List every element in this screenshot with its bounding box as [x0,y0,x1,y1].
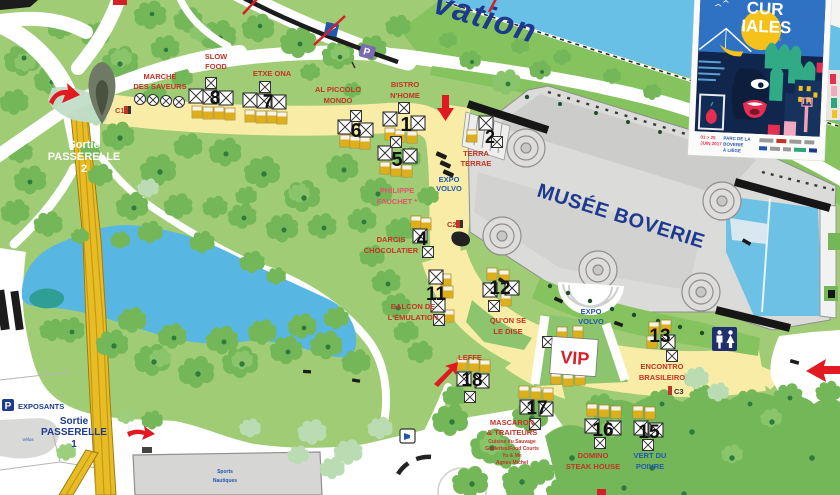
svg-text:JUIN 2017: JUIN 2017 [700,141,722,147]
svg-text:17: 17 [526,398,547,419]
svg-text:BALCON DE: BALCON DE [391,302,436,311]
svg-text:MARCHÉ: MARCHÉ [144,72,177,81]
svg-text:Nautiques: Nautiques [213,478,237,484]
svg-text:N'HOME: N'HOME [390,91,420,100]
svg-text:15: 15 [638,422,660,443]
svg-text:Sortie: Sortie [60,416,89,427]
svg-text:EXPO: EXPO [581,307,602,316]
svg-text:SLOW: SLOW [205,52,228,61]
svg-text:2: 2 [81,163,87,175]
svg-text:13: 13 [649,326,670,347]
svg-text:6: 6 [350,120,361,142]
svg-text:EXPOSANTS: EXPOSANTS [18,402,64,411]
svg-text:LEFFE: LEFFE [458,353,482,362]
svg-text:Cuisine du Sauvage: Cuisine du Sauvage [488,439,536,445]
svg-text:Yu & Me: Yu & Me [502,453,522,459]
svg-text:PASSERELLE: PASSERELLE [48,151,121,163]
svg-text:CHOCOLATIER: CHOCOLATIER [364,246,419,255]
svg-text:16: 16 [592,420,613,441]
svg-text:Vélos: Vélos [22,437,34,442]
svg-text:DARCIS: DARCIS [377,235,406,244]
svg-text:7: 7 [263,92,274,113]
svg-text:VOLVO: VOLVO [578,317,604,326]
svg-text:1: 1 [71,439,77,450]
svg-text:Sortie: Sortie [68,139,99,151]
svg-text:MASCARON: MASCARON [490,418,534,427]
svg-text:C1: C1 [115,106,125,115]
svg-text:Sports: Sports [217,469,233,475]
svg-text:MONDO: MONDO [324,96,353,105]
svg-text:Gaillettes/Food Courts: Gaillettes/Food Courts [485,446,539,452]
svg-text:VERT DU: VERT DU [634,451,667,460]
svg-text:01 > 25: 01 > 25 [700,135,716,141]
svg-text:AL PICCOLO: AL PICCOLO [315,85,361,94]
svg-text:ENCONTRO: ENCONTRO [641,362,684,371]
svg-text:STEAK HOUSE: STEAK HOUSE [566,462,620,471]
svg-text:EXPO: EXPO [439,175,460,184]
svg-text:ETXE ONA: ETXE ONA [253,69,292,78]
svg-text:FAUCHET *: FAUCHET * [377,197,418,206]
svg-text:IALES: IALES [741,16,792,37]
svg-text:BISTRO: BISTRO [391,80,420,89]
svg-text:4: 4 [417,229,428,250]
svg-text:PASSERELLE: PASSERELLE [41,427,107,438]
svg-text:5: 5 [391,149,402,171]
svg-text:DES SAVEURS: DES SAVEURS [133,82,186,91]
svg-text:TERRA: TERRA [463,149,489,158]
svg-text:TERRAE: TERRAE [461,159,492,168]
svg-text:Agnes Michel: Agnes Michel [496,460,529,466]
svg-text:VOLVO: VOLVO [436,184,462,193]
svg-text:QU'ON SE: QU'ON SE [490,316,526,325]
svg-text:C3: C3 [674,387,684,396]
svg-text:POIVRE: POIVRE [636,462,664,471]
svg-text:FOOD: FOOD [205,62,227,71]
svg-text:L'ÉMULATION: L'ÉMULATION [388,313,438,322]
svg-text:P: P [5,401,12,412]
svg-text:& TRAITEURS: & TRAITEURS [487,428,537,437]
svg-text:DOMINO: DOMINO [578,451,609,460]
svg-text:PHILIPPE: PHILIPPE [380,186,414,195]
svg-text:C2: C2 [447,220,457,229]
svg-text:1: 1 [400,114,411,136]
svg-text:2: 2 [485,127,495,147]
svg-text:8: 8 [210,88,221,109]
svg-text:LE DISE: LE DISE [493,327,522,336]
svg-text:BRASILEIRO: BRASILEIRO [639,373,685,382]
svg-text:VIP: VIP [560,347,590,369]
svg-text:18: 18 [461,370,482,391]
svg-text:BOVERIE: BOVERIE [723,142,743,148]
